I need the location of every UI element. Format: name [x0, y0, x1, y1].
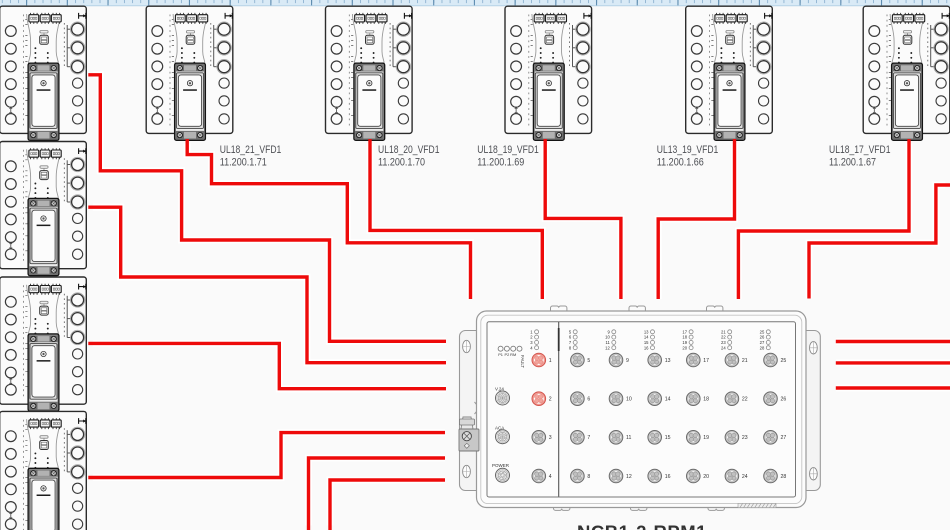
svg-text:28: 28: [760, 345, 765, 350]
svg-text:24: 24: [721, 345, 726, 350]
svg-text:6: 6: [587, 397, 590, 403]
svg-text:16: 16: [665, 474, 671, 480]
svg-text:19: 19: [703, 435, 709, 441]
svg-text:27: 27: [760, 340, 765, 345]
svg-text:20: 20: [682, 345, 687, 350]
svg-text:11.200.1.69: 11.200.1.69: [477, 156, 524, 168]
svg-text:21: 21: [742, 358, 748, 364]
svg-text:15: 15: [665, 435, 671, 441]
svg-text:27: 27: [781, 435, 787, 441]
svg-text:20: 20: [703, 474, 709, 480]
svg-text:NCB1-2-RPM1: NCB1-2-RPM1: [577, 522, 707, 530]
svg-text:11: 11: [605, 340, 610, 345]
svg-text:9: 9: [626, 358, 629, 364]
svg-text:11.200.1.66: 11.200.1.66: [657, 156, 704, 168]
svg-text:14: 14: [644, 335, 649, 340]
svg-text:23: 23: [721, 340, 726, 345]
svg-text:28: 28: [781, 474, 787, 480]
svg-text:POWER: POWER: [492, 463, 510, 468]
svg-text:P2: P2: [505, 352, 510, 357]
svg-text:UL18_21_VFD1: UL18_21_VFD1: [220, 144, 281, 156]
svg-text:10: 10: [605, 335, 610, 340]
svg-text:13: 13: [665, 358, 671, 364]
svg-text:16: 16: [644, 345, 649, 350]
svg-text:14: 14: [665, 397, 671, 403]
svg-text:11.200.1.67: 11.200.1.67: [829, 156, 876, 168]
svg-text:12: 12: [605, 345, 610, 350]
svg-text:21: 21: [721, 329, 726, 334]
svg-text:7: 7: [587, 435, 590, 441]
svg-text:4: 4: [549, 474, 552, 480]
svg-text:10: 10: [626, 397, 632, 403]
svg-text:11.200.1.70: 11.200.1.70: [378, 156, 425, 168]
svg-text:17: 17: [703, 358, 709, 364]
svg-text:1: 1: [549, 358, 552, 364]
svg-text:UL18_19_VFD1: UL18_19_VFD1: [477, 144, 539, 156]
svg-text:2: 2: [549, 397, 552, 403]
svg-text:18: 18: [703, 397, 709, 403]
svg-text:P1: P1: [498, 352, 503, 357]
svg-text:22: 22: [721, 335, 726, 340]
svg-text:17: 17: [682, 329, 687, 334]
svg-text:11: 11: [626, 435, 631, 441]
svg-text:26: 26: [760, 335, 765, 340]
svg-text:23: 23: [742, 435, 748, 441]
svg-text:12: 12: [626, 474, 632, 480]
svg-text:FAULT: FAULT: [520, 355, 525, 368]
svg-text:UL13_19_VFD1: UL13_19_VFD1: [657, 144, 719, 156]
svg-text:18: 18: [682, 335, 687, 340]
svg-text:15: 15: [644, 340, 649, 345]
svg-text:UL18_20_VFD1: UL18_20_VFD1: [378, 144, 440, 156]
svg-text:5: 5: [587, 358, 590, 364]
svg-text:11.200.1.71: 11.200.1.71: [220, 156, 267, 168]
svg-text:22: 22: [742, 397, 748, 403]
svg-text:24: 24: [742, 474, 748, 480]
svg-text:25: 25: [760, 329, 765, 334]
svg-text:13: 13: [644, 329, 649, 334]
svg-text:UL18_17_VFD1: UL18_17_VFD1: [829, 144, 891, 156]
svg-text:8: 8: [587, 474, 590, 480]
svg-text:RM: RM: [510, 352, 516, 357]
svg-text:26: 26: [781, 397, 787, 403]
svg-text:3: 3: [549, 435, 552, 441]
svg-text:25: 25: [781, 358, 787, 364]
svg-text:19: 19: [682, 340, 687, 345]
